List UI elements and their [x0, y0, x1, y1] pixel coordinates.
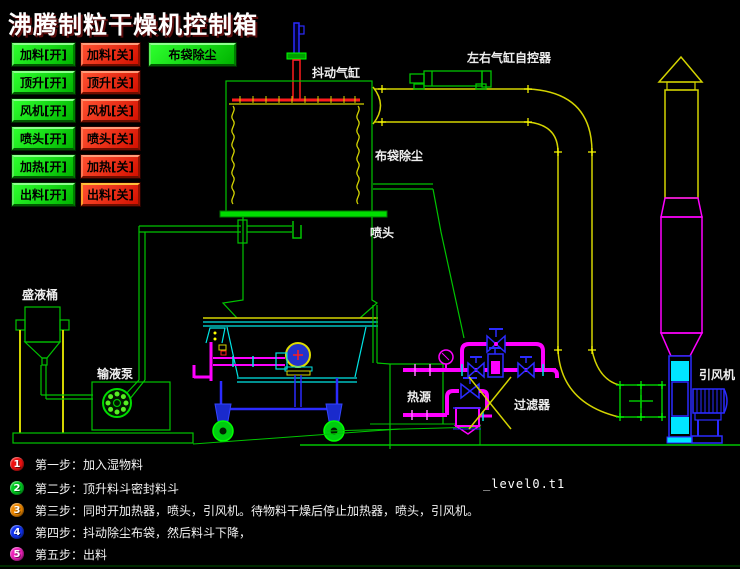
- step-4-badge: 4: [10, 525, 24, 539]
- step-1-text: 第一步：加入湿物料: [35, 456, 143, 473]
- steam-valve-train: [403, 329, 557, 378]
- page-title: 沸腾制粒干燥机控制箱: [8, 5, 258, 40]
- discharge-on-button[interactable]: 出料[开]: [12, 183, 75, 206]
- step-3-text: 第三步：同时开加热器，喷头，引风机。待物料干燥后停止加热器，喷头，引风机。: [35, 502, 479, 519]
- return-duct: [373, 184, 464, 338]
- shaker-cylinder-icon: [287, 23, 306, 100]
- heat-source-label: 热源: [407, 388, 431, 405]
- filter-unit: [403, 377, 511, 434]
- step-3-badge: 3: [10, 503, 24, 517]
- step-row-5: 5 第五步：出料: [10, 547, 107, 561]
- liquid-tank-label: 盛液桶: [22, 286, 58, 303]
- shake-cylinder-label: 抖动气缸: [312, 64, 360, 81]
- cart-with-wheels: [213, 378, 344, 441]
- fan-off-button[interactable]: 风机[关]: [81, 99, 140, 122]
- bag-dust-button[interactable]: 布袋除尘: [149, 43, 236, 66]
- heater-frame: [373, 305, 443, 449]
- step-row-4: 4 第四步：抖动除尘布袋，然后料斗下降，: [10, 525, 251, 539]
- liquid-pump-label: 输液泵: [97, 365, 133, 382]
- lift-on-button[interactable]: 顶升[开]: [12, 71, 75, 94]
- vessel-lid: [229, 96, 364, 104]
- step-1-badge: 1: [10, 457, 24, 471]
- step-row-1: 1 第一步：加入湿物料: [10, 457, 143, 471]
- lr-controller-label: 左右气缸自控器: [467, 49, 551, 66]
- fan-on-button[interactable]: 风机[开]: [12, 99, 75, 122]
- nozzle-on-button[interactable]: 喷头[开]: [12, 127, 75, 150]
- step-5-badge: 5: [10, 547, 24, 561]
- feed-on-button[interactable]: 加料[开]: [12, 43, 75, 66]
- step-2-text: 第二步：顶升料斗密封料斗: [35, 480, 179, 497]
- nozzle-off-button[interactable]: 喷头[关]: [81, 127, 140, 150]
- step-4-text: 第四步：抖动除尘布袋，然后料斗下降，: [35, 524, 251, 541]
- liquid-pump-icon: [13, 382, 193, 443]
- step-5-text: 第五步：出料: [35, 546, 107, 563]
- discharge-off-button[interactable]: 出料[关]: [81, 183, 140, 206]
- flex-connector: [616, 381, 666, 421]
- liquid-tank-icon: [16, 307, 93, 433]
- flash-variable-text: _level0.t1: [483, 477, 565, 491]
- step-row-3: 3 第三步：同时开加热器，喷头，引风机。待物料干燥后停止加热器，喷头，引风机。: [10, 503, 479, 517]
- bag-dust-label: 布袋除尘: [375, 147, 423, 164]
- filter-label: 过滤器: [514, 396, 550, 413]
- induced-fan-label: 引风机: [699, 366, 735, 383]
- heat-off-button[interactable]: 加热[关]: [81, 155, 140, 178]
- step-row-2: 2 第二步：顶升料斗密封料斗: [10, 481, 179, 495]
- chimney-icon: [659, 57, 702, 356]
- feed-off-button[interactable]: 加料[关]: [81, 43, 140, 66]
- heat-on-button[interactable]: 加热[开]: [12, 155, 75, 178]
- discharge-motor: [194, 342, 312, 407]
- step-2-badge: 2: [10, 481, 24, 495]
- control-box-window: 沸腾制粒干燥机控制箱 加料[开] 顶升[开] 风机[开] 喷头[开] 加热[开]…: [0, 0, 740, 569]
- lr-cylinder-controller-icon: [410, 71, 491, 89]
- nozzle-label: 喷头: [370, 224, 394, 241]
- lift-off-button[interactable]: 顶升[关]: [81, 71, 140, 94]
